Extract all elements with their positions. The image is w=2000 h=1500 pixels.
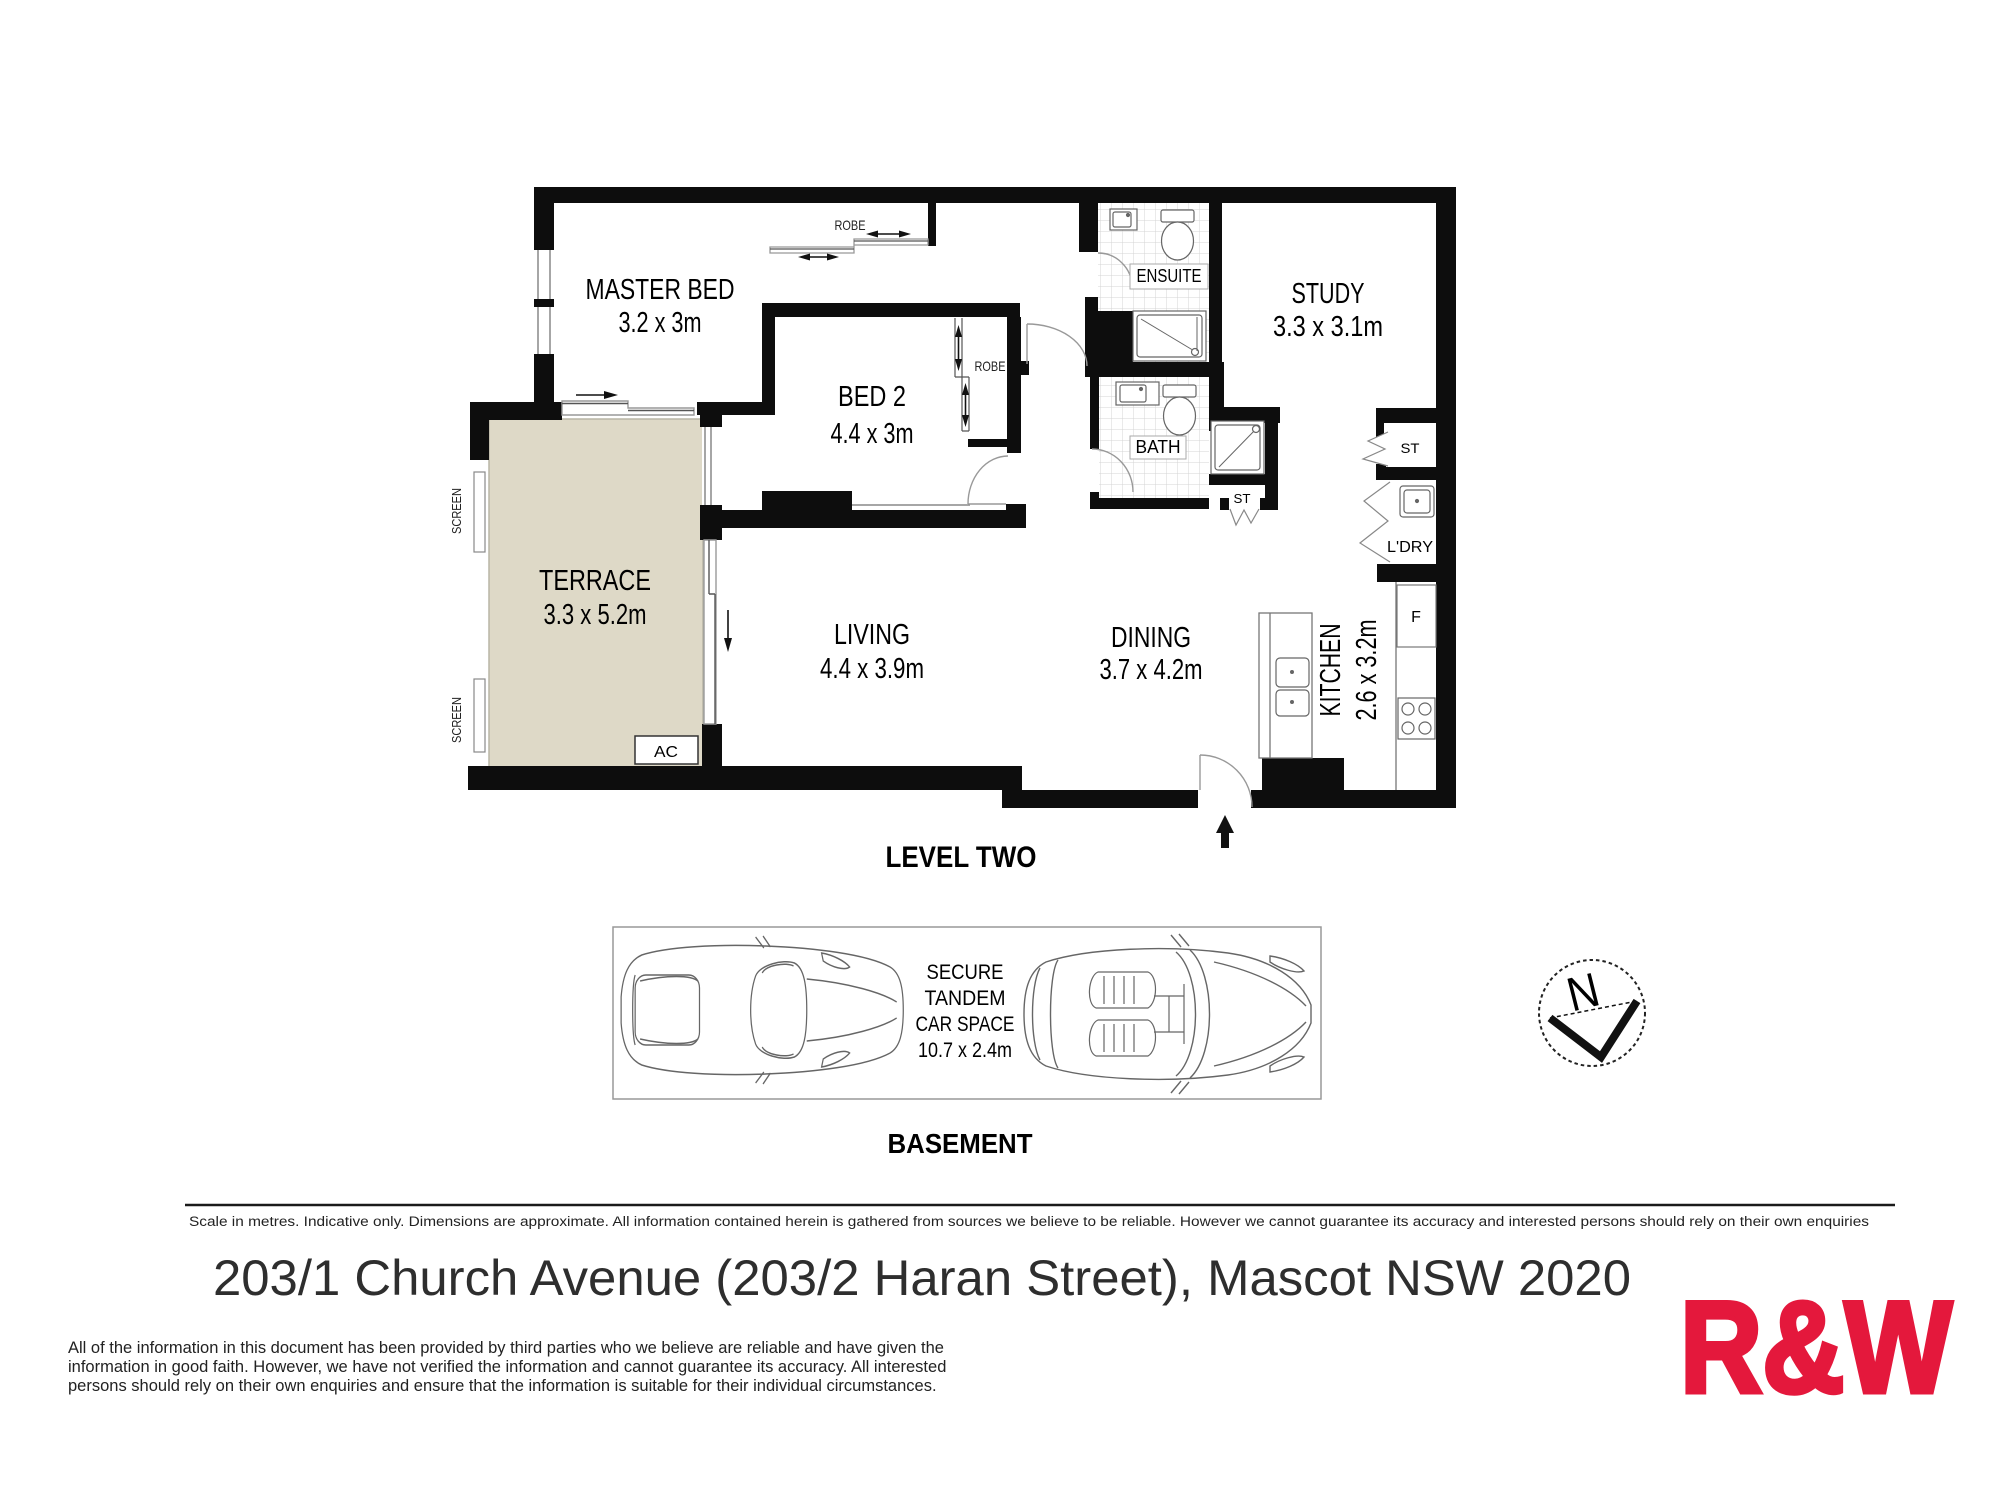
- svg-text:ENSUITE: ENSUITE: [1137, 266, 1202, 286]
- svg-text:TERRACE: TERRACE: [539, 565, 651, 597]
- svg-text:F: F: [1411, 609, 1421, 626]
- svg-text:4.4 x 3m: 4.4 x 3m: [831, 418, 914, 450]
- svg-text:LEVEL TWO: LEVEL TWO: [886, 841, 1037, 874]
- svg-text:SCREEN: SCREEN: [449, 697, 464, 743]
- svg-text:information in good faith. How: information in good faith. However, we h…: [68, 1358, 946, 1376]
- svg-text:203/1 Church Avenue (203/2 Har: 203/1 Church Avenue (203/2 Haran Street)…: [213, 1250, 1631, 1306]
- svg-text:ROBE: ROBE: [835, 217, 866, 233]
- svg-text:MASTER BED: MASTER BED: [586, 274, 735, 306]
- svg-text:CAR SPACE: CAR SPACE: [916, 1013, 1015, 1036]
- svg-text:2.6 x 3.2m: 2.6 x 3.2m: [1351, 620, 1383, 721]
- svg-text:KITCHEN: KITCHEN: [1315, 624, 1347, 717]
- svg-text:DINING: DINING: [1111, 622, 1191, 654]
- svg-text:L'DRY: L'DRY: [1387, 539, 1433, 556]
- svg-text:STUDY: STUDY: [1292, 278, 1365, 310]
- svg-text:3.3 x 3.1m: 3.3 x 3.1m: [1273, 311, 1383, 343]
- svg-text:SCREEN: SCREEN: [449, 488, 464, 534]
- svg-text:All of the information in this: All of the information in this document …: [68, 1339, 944, 1357]
- svg-text:ST: ST: [1234, 491, 1251, 506]
- svg-text:BED 2: BED 2: [838, 381, 906, 413]
- svg-text:persons should rely on their o: persons should rely on their own enquiri…: [68, 1377, 937, 1395]
- svg-text:BASEMENT: BASEMENT: [888, 1128, 1033, 1159]
- svg-text:SECURE: SECURE: [927, 961, 1004, 984]
- svg-text:ST: ST: [1401, 440, 1420, 456]
- svg-text:3.7 x 4.2m: 3.7 x 4.2m: [1100, 654, 1203, 686]
- svg-text:LIVING: LIVING: [834, 619, 910, 651]
- svg-text:10.7 x 2.4m: 10.7 x 2.4m: [918, 1039, 1012, 1062]
- svg-text:3.3 x 5.2m: 3.3 x 5.2m: [544, 599, 647, 631]
- svg-text:ROBE: ROBE: [975, 358, 1006, 374]
- svg-text:TANDEM: TANDEM: [925, 987, 1006, 1010]
- svg-text:3.2 x 3m: 3.2 x 3m: [619, 307, 702, 339]
- svg-text:4.4 x 3.9m: 4.4 x 3.9m: [820, 653, 924, 685]
- svg-text:R&W: R&W: [1680, 1274, 1952, 1420]
- svg-text:BATH: BATH: [1136, 437, 1181, 457]
- svg-text:Scale in metres. Indicative on: Scale in metres. Indicative only. Dimens…: [189, 1214, 1869, 1229]
- svg-text:AC: AC: [654, 744, 678, 761]
